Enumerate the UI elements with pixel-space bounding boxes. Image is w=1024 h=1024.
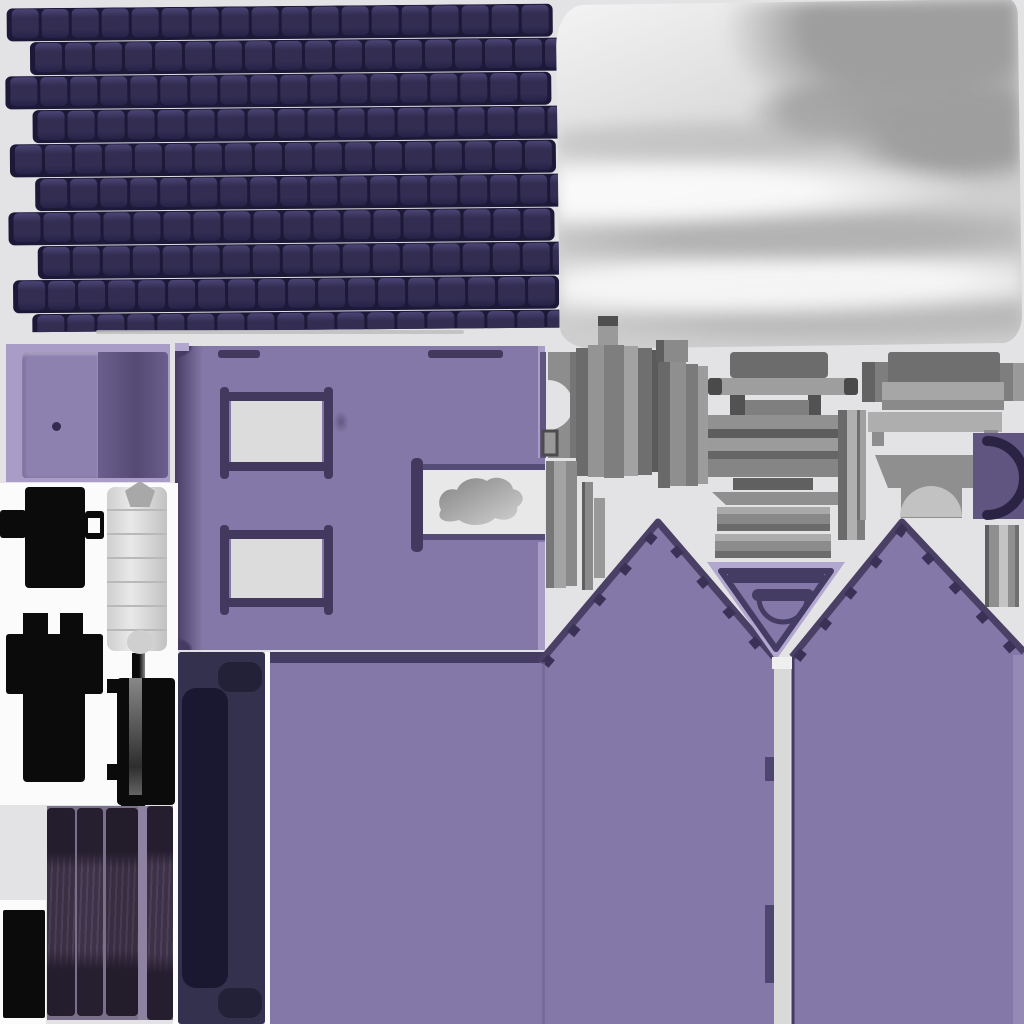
- shingle-tile: [221, 7, 248, 36]
- mattress-foot: [127, 630, 153, 654]
- shingle-tile: [460, 175, 487, 204]
- wall-top-mark: [218, 350, 260, 358]
- shingle-tile: [424, 40, 451, 69]
- fixture-arm: [107, 764, 119, 780]
- window-bar: [220, 598, 333, 607]
- shingle-tile: [460, 73, 487, 102]
- stove-arm: [0, 510, 26, 538]
- shingle-tile: [334, 40, 361, 69]
- shingle-tile: [311, 7, 338, 36]
- wall-lilac-corner: [175, 343, 189, 351]
- door-left-leaf: [22, 352, 98, 478]
- shingle-tile: [67, 111, 94, 140]
- shingle-tile: [522, 243, 549, 272]
- shingle-tile: [257, 279, 284, 308]
- wall-panel: [175, 346, 545, 650]
- shingle-tile: [131, 8, 158, 37]
- shingle-tile: [494, 141, 521, 170]
- window-niche: [423, 470, 545, 534]
- shingle-tile: [491, 5, 518, 34]
- shingle-tile: [317, 278, 344, 307]
- shingle-tile: [403, 210, 430, 239]
- shingle-tile: [164, 144, 191, 173]
- window-post: [324, 525, 333, 615]
- shingle-tile: [310, 177, 337, 206]
- shingle-tile: [227, 279, 254, 308]
- shingle-tile: [527, 277, 554, 306]
- gable-gap-strip: [772, 657, 792, 1024]
- headboard-tab: [218, 662, 262, 692]
- shingle-row: [35, 173, 559, 211]
- shingle-tile: [130, 178, 157, 207]
- shingle-tile: [401, 6, 428, 35]
- shingle-tile: [427, 107, 454, 136]
- shingle-row: [10, 140, 556, 178]
- shingle-tile: [484, 39, 511, 68]
- shingle-tile: [282, 245, 309, 274]
- shingle-row: [5, 72, 551, 110]
- shingle-tile: [307, 109, 334, 138]
- shingle-tile: [124, 42, 151, 71]
- shingle-tile: [187, 110, 214, 139]
- shingle-tile: [370, 74, 397, 103]
- shingle-tile: [162, 246, 189, 275]
- shingle-tile: [432, 243, 459, 272]
- shingle-tile: [100, 178, 127, 207]
- shingle-tile: [454, 39, 481, 68]
- shingle-tile: [251, 7, 278, 36]
- shingle-tile: [347, 278, 374, 307]
- shingle-tile: [94, 42, 121, 71]
- shingle-tile: [73, 213, 100, 242]
- wall-smudge: [330, 406, 352, 438]
- headboard-tab: [218, 988, 262, 1018]
- niche-edge: [423, 534, 545, 540]
- shingle-tile: [280, 177, 307, 206]
- shingle-tile: [367, 108, 394, 137]
- shingle-tile: [340, 176, 367, 205]
- shingle-tile: [132, 246, 159, 275]
- shingle-tile: [37, 315, 64, 332]
- shingle-tile: [364, 40, 391, 69]
- shingle-tile: [163, 212, 190, 241]
- shingle-tile: [520, 175, 547, 204]
- shingle-tile: [103, 212, 130, 241]
- window-post: [220, 387, 229, 479]
- shingle-tile: [160, 178, 187, 207]
- roof-shadow-line: [96, 330, 464, 334]
- wall-left-shadow: [175, 346, 203, 650]
- headboard-panel: [178, 652, 265, 1024]
- shingle-tile: [97, 110, 124, 139]
- shingle-tile: [214, 41, 241, 70]
- shingle-tile: [42, 247, 69, 276]
- shingle-row: [32, 105, 559, 143]
- door-right-leaf: [98, 352, 168, 478]
- shingle-tile: [430, 73, 457, 102]
- shingle-tile: [44, 145, 71, 174]
- shingle-tile: [77, 281, 104, 310]
- shingle-tile: [250, 75, 277, 104]
- plank-boards: [47, 806, 173, 1020]
- fixture-stripe: [129, 678, 142, 805]
- shingle-tile: [397, 108, 424, 137]
- shingle-tile: [10, 77, 37, 106]
- satin-fabric: [556, 0, 1023, 349]
- shingle-tile: [437, 277, 464, 306]
- shingle-tile: [154, 42, 181, 71]
- shingle-row: [7, 4, 553, 42]
- wall-corner-curl: [175, 632, 201, 650]
- shingle-tile: [343, 210, 370, 239]
- fabric-highlight-folds: [556, 0, 1023, 349]
- headboard-recess: [182, 688, 228, 988]
- right-gable: [792, 522, 1024, 1024]
- shingle-tile: [370, 176, 397, 205]
- window-1: [220, 390, 333, 476]
- shingle-tile: [190, 178, 217, 207]
- shingle-tile: [342, 244, 369, 273]
- mattress-roll: [107, 487, 167, 651]
- chimney-silhouette: [6, 634, 103, 694]
- shingle-tile: [404, 142, 431, 171]
- shingle-tile: [277, 109, 304, 138]
- shingle-tile: [400, 176, 427, 205]
- shingle-tile: [493, 209, 520, 238]
- shingle-tile: [463, 209, 490, 238]
- shingle-tile: [434, 141, 461, 170]
- shingle-tile: [467, 277, 494, 306]
- shingle-tile: [281, 7, 308, 36]
- fixture-top-bar: [132, 653, 145, 680]
- shingle-tile: [252, 245, 279, 274]
- shingle-tile: [184, 42, 211, 71]
- shingle-tile: [137, 280, 164, 309]
- shingle-tile: [400, 74, 427, 103]
- fixture-body: [117, 678, 175, 805]
- shingle-tile: [134, 144, 161, 173]
- shingle-tile: [47, 281, 74, 310]
- shingle-tile: [217, 109, 244, 138]
- shingle-tile: [133, 212, 160, 241]
- window-pane: [231, 539, 322, 599]
- shingle-tile: [127, 110, 154, 139]
- plank: [147, 806, 173, 1020]
- window-pane: [231, 401, 322, 463]
- shingle-tile: [524, 141, 551, 170]
- shingle-tile: [222, 245, 249, 274]
- shingle-tile: [130, 76, 157, 105]
- shingle-tile: [314, 142, 341, 171]
- window-post: [220, 525, 229, 615]
- shingle-tile: [490, 73, 517, 102]
- shingle-tile: [487, 311, 514, 332]
- shingle-tile: [193, 212, 220, 241]
- shingle-tile: [464, 141, 491, 170]
- shingle-tile: [457, 107, 484, 136]
- shingle-tile: [250, 177, 277, 206]
- shingle-tile: [247, 109, 274, 138]
- roof-shingles: [5, 4, 560, 333]
- shingle-tile: [190, 76, 217, 105]
- shingle-tile: [71, 9, 98, 38]
- shingle-tile: [157, 110, 184, 139]
- shingle-tile: [492, 243, 519, 272]
- shingle-tile: [407, 278, 434, 307]
- shingle-tile: [194, 144, 221, 173]
- shingle-tile: [394, 40, 421, 69]
- shingle-tile: [161, 8, 188, 37]
- shingle-tile: [224, 143, 251, 172]
- shingle-tile: [40, 77, 67, 106]
- shingle-tile: [220, 75, 247, 104]
- stove-hole: [88, 518, 100, 533]
- shingle-tile: [160, 76, 187, 105]
- plank-gap: [138, 806, 147, 1020]
- shingle-tile: [40, 179, 67, 208]
- fixture-arm: [107, 679, 119, 693]
- shingle-tile: [17, 281, 44, 310]
- shingle-tile: [461, 5, 488, 34]
- shingle-tile: [430, 175, 457, 204]
- shingle-tile: [37, 111, 64, 140]
- shingle-tile: [431, 5, 458, 34]
- shingle-tile: [433, 209, 460, 238]
- plank: [106, 808, 138, 1016]
- shingle-tile: [107, 280, 134, 309]
- gable-walls: [535, 505, 1024, 1024]
- shingle-tile: [197, 280, 224, 309]
- shingle-tile: [74, 145, 101, 174]
- shingle-tile: [220, 177, 247, 206]
- shingle-tile: [223, 211, 250, 240]
- shingle-tile: [101, 8, 128, 37]
- bench-piece: [708, 352, 858, 417]
- sheet-top-band: [270, 652, 545, 663]
- shingle-tile: [517, 107, 544, 136]
- shingle-tile: [14, 145, 41, 174]
- shingle-tile: [70, 77, 97, 106]
- shingle-tile: [520, 73, 547, 102]
- shingle-tile: [11, 9, 38, 38]
- shingle-tile: [102, 246, 129, 275]
- door-card: [6, 344, 170, 482]
- shingle-tile: [341, 6, 368, 35]
- shingle-tile: [244, 41, 271, 70]
- wall-top-mark: [428, 350, 503, 358]
- ribbed-column-a: [576, 316, 658, 478]
- shingle-tile: [373, 210, 400, 239]
- window-bar: [220, 462, 333, 471]
- shingle-tile: [72, 247, 99, 276]
- shingle-tile: [253, 211, 280, 240]
- shingle-tile: [191, 8, 218, 37]
- stove-silhouette: [25, 487, 85, 588]
- shingle-tile: [274, 41, 301, 70]
- plank: [77, 808, 103, 1016]
- shingle-tile: [167, 280, 194, 309]
- shingle-tile: [254, 143, 281, 172]
- shingle-row: [8, 208, 554, 246]
- shingle-tile: [340, 74, 367, 103]
- shingle-row: [38, 241, 560, 279]
- shingle-tile: [43, 213, 70, 242]
- shingle-tile: [372, 244, 399, 273]
- shingle-tile: [523, 209, 550, 238]
- shingle-tile: [490, 175, 517, 204]
- shingle-tile: [377, 278, 404, 307]
- plank: [47, 808, 75, 1016]
- shingle-tile: [34, 43, 61, 72]
- shingle-tile: [312, 245, 339, 274]
- ink-rectangle: [3, 910, 45, 1018]
- shingle-tile: [100, 76, 127, 105]
- shingle-row: [30, 37, 560, 75]
- shingle-tile: [67, 315, 94, 333]
- window-2: [220, 528, 333, 612]
- shingle-tile: [304, 41, 331, 70]
- shingle-row: [13, 276, 559, 314]
- shingle-tile: [13, 213, 40, 242]
- niche-post: [411, 458, 423, 552]
- shingle-tile: [280, 75, 307, 104]
- window-bar: [220, 530, 333, 539]
- shingle-tile: [514, 39, 541, 68]
- shingle-tile: [41, 9, 68, 38]
- shingle-tile: [337, 108, 364, 137]
- shingle-tile: [70, 179, 97, 208]
- shingle-tile: [283, 211, 310, 240]
- shingle-tile: [462, 243, 489, 272]
- wall-corner-square: [543, 431, 557, 455]
- shingle-tile: [487, 107, 514, 136]
- ribbed-column-b: [656, 340, 708, 488]
- shingle-tile: [371, 6, 398, 35]
- window-bar: [220, 392, 333, 401]
- shingle-tile: [402, 244, 429, 273]
- shingle-tile: [521, 5, 548, 34]
- shingle-tile: [310, 75, 337, 104]
- shingle-tile: [344, 142, 371, 171]
- niche-edge: [423, 464, 545, 470]
- shingle-tile: [192, 246, 219, 275]
- shingle-tile: [287, 279, 314, 308]
- texture-atlas-canvas: [0, 0, 1024, 1024]
- mantel-piece: [862, 352, 1024, 410]
- chimney-base: [23, 693, 85, 782]
- shingle-tile: [374, 142, 401, 171]
- shingle-tile: [64, 43, 91, 72]
- door-knob: [52, 422, 61, 431]
- cloth-scrap: [423, 470, 545, 534]
- shingle-tile: [313, 210, 340, 239]
- purple-sheet: [270, 652, 545, 1024]
- shingle-tile: [284, 143, 311, 172]
- shingle-row: [32, 309, 559, 332]
- fixture-silhouette: [107, 653, 173, 805]
- shingle-tile: [104, 144, 131, 173]
- shingle-tile: [497, 277, 524, 306]
